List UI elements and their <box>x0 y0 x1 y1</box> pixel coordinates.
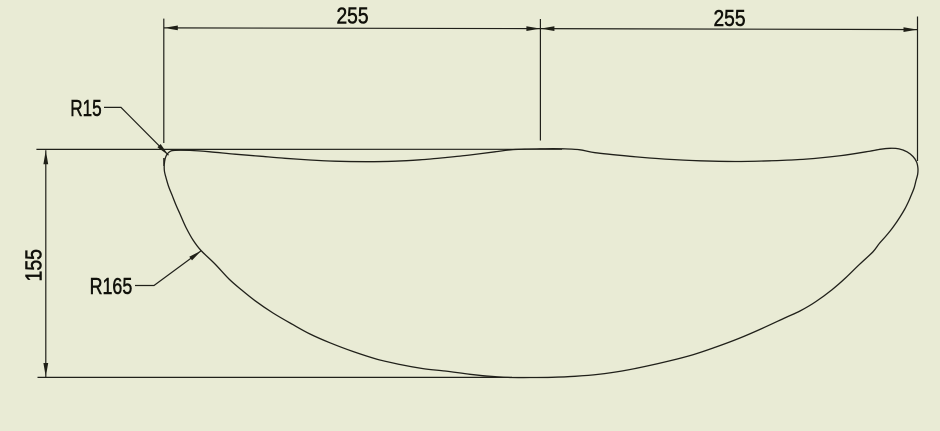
svg-text:R165: R165 <box>90 273 133 299</box>
svg-text:155: 155 <box>21 249 47 282</box>
svg-text:255: 255 <box>714 5 746 31</box>
svg-text:R15: R15 <box>70 95 102 121</box>
svg-text:255: 255 <box>337 3 369 29</box>
